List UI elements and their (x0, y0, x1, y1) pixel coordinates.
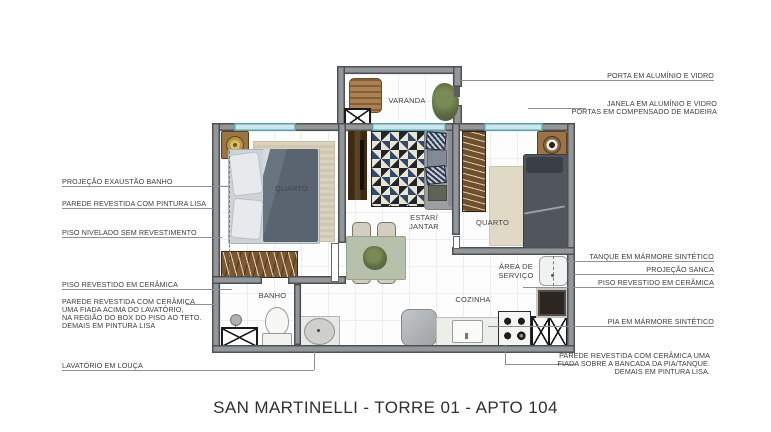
leader-line (569, 274, 714, 275)
wall-bedroom-right-bottom (452, 247, 575, 255)
wall-right (567, 123, 575, 353)
annotation-pia: PIA EM MÁRMORE SINTÉTICO (608, 318, 714, 326)
window-bedroom-left (234, 123, 296, 131)
floorplan-canvas: VARANDA QUARTO QUARTO ESTAR/ JANTAR BANH… (0, 0, 771, 432)
wardrobe-left (221, 251, 298, 278)
sofa-pillow-4 (428, 185, 447, 201)
annotation-pintura-lisa: PAREDE REVESTIDA COM PINTURA LISA (62, 200, 206, 208)
washing-machine (536, 288, 568, 318)
dining-table-plant (363, 246, 387, 270)
refrigerator (401, 309, 437, 346)
leader-line (62, 186, 229, 187)
shower-head (230, 314, 242, 326)
varanda-wall-top (337, 66, 462, 74)
annotation-line: DEMAIS EM PINTURA LISA (62, 322, 207, 330)
single-bed-pillow (526, 157, 563, 173)
room-label-estar-line2: JANTAR (396, 223, 452, 232)
room-label-quarto-right: QUARTO (465, 219, 520, 228)
annotation-piso-nivelado: PISO NIVELADO SEM REVESTIMENTO (62, 229, 197, 237)
bedroom-right-rug (489, 166, 525, 246)
washbasin-drain (317, 329, 320, 332)
annotation-parede-ceramica-banho: PAREDE REVESTIDA COM CERÂMICA UMA FIADA … (62, 298, 207, 330)
annotation-line: DEMAIS EM PINTURA LISA. (530, 368, 710, 376)
lamp-right (543, 136, 561, 154)
annotation-tanque: TANQUE EM MÁRMORE SINTÉTICO (589, 253, 714, 261)
annotation-piso-ceramica-right: PISO REVESTIDO EM CERÂMICA (598, 279, 714, 287)
window-bedroom-right (484, 123, 543, 131)
annotation-parede-ceramica-pia: PAREDE REVESTIDA COM CERÂMICA UMA FIADA … (530, 352, 710, 376)
wall-bottom (212, 345, 575, 353)
kitchen-sink-faucet (465, 333, 468, 339)
tv-panel (348, 129, 367, 200)
annotation-piso-ceramica-left: PISO REVESTIDO EM CERÂMICA (62, 281, 178, 289)
annotation-line: PORTAS EM COMPENSADO DE MADEIRA (572, 108, 717, 116)
leader-line (566, 261, 714, 262)
annotation-janela-aluminio: JANELA EM ALUMÍNIO E VIDRO PORTAS EM COM… (572, 100, 717, 116)
double-bed-duvet (263, 149, 318, 242)
wall-bedroom-left-bottom-a (212, 276, 262, 284)
toilet-bowl (265, 307, 289, 336)
room-label-estar: ESTAR/ JANTAR (396, 214, 452, 231)
kitchen-cabinet-box-2 (548, 316, 568, 348)
wall-left (212, 123, 220, 353)
leader-line (523, 287, 714, 288)
sofa-pillow-1 (425, 131, 446, 151)
leader-line (314, 348, 315, 370)
wardrobe-right (462, 131, 486, 212)
leader-line (488, 326, 714, 327)
varanda-door-leaf (454, 87, 460, 97)
room-label-cozinha: COZINHA (443, 296, 503, 305)
room-label-quarto-left: QUARTO (264, 185, 319, 194)
leader-line (62, 237, 222, 238)
room-label-varanda: VARANDA (377, 97, 437, 106)
bedroom-left-door-leaf (331, 243, 339, 282)
annotation-lavatorio: LAVATÓRIO EM LOUÇA (62, 362, 143, 370)
sofa-pillow-3 (425, 165, 447, 185)
kitchen-sink (452, 320, 483, 343)
sanca-projection-line (553, 256, 554, 286)
room-label-area-servico-line2: SERVIÇO (490, 272, 542, 281)
annotation-porta-aluminio: PORTA EM ALUMÍNIO E VIDRO (607, 72, 714, 80)
tv-screen (360, 140, 364, 190)
annotation-sanca: PROJEÇÃO SANCA (646, 266, 714, 274)
stove (498, 311, 531, 346)
room-label-banho: BANHO (245, 292, 300, 301)
varanda-wall-right-upper (453, 66, 462, 87)
annotation-exaustao-banho: PROJEÇÃO EXAUSTÃO BANHO (62, 178, 173, 186)
bedroom-right-door-leaf (453, 236, 460, 249)
leader-line (62, 208, 213, 209)
room-label-area-servico: ÁREA DE SERVIÇO (490, 263, 542, 280)
wall-living-bedroom-right (452, 123, 460, 235)
leader-line (461, 80, 714, 81)
exhaust-projection-line (229, 151, 230, 277)
double-bed-pillow-1 (229, 151, 264, 196)
leader-line (62, 289, 232, 290)
living-room-rug (371, 131, 426, 207)
wall-bedroom-left-living (338, 123, 346, 243)
leader-line (505, 345, 506, 364)
sliding-glass-door (372, 123, 446, 131)
leader-line (62, 370, 314, 371)
plan-title: SAN MARTINELLI - TORRE 01 - APTO 104 (0, 398, 771, 418)
double-bed-pillow-2 (230, 198, 263, 240)
